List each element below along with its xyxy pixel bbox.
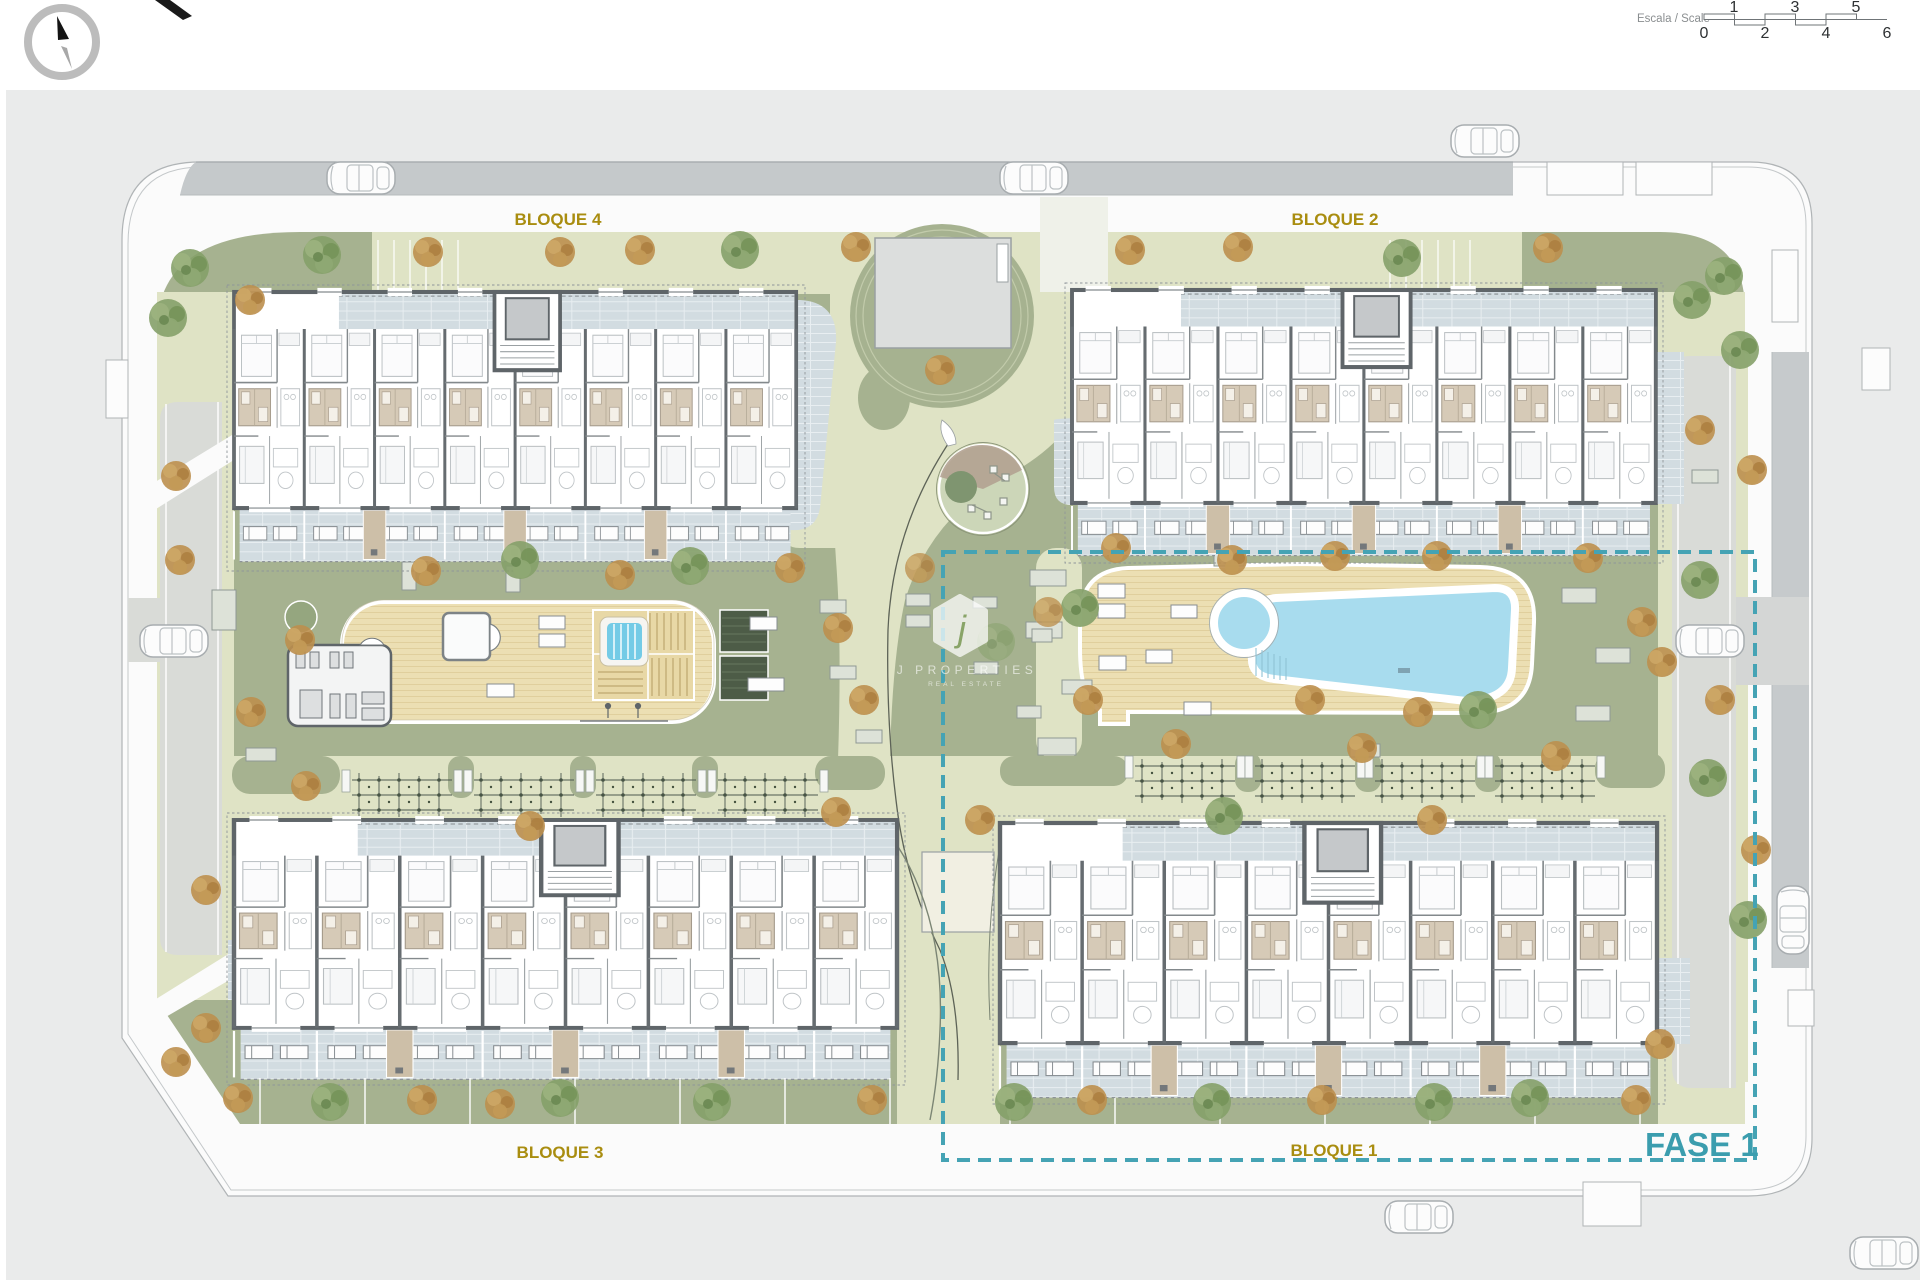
svg-text:J PROPERTIES: J PROPERTIES: [897, 663, 1037, 677]
svg-text:5: 5: [1852, 0, 1861, 16]
svg-text:REAL ESTATE: REAL ESTATE: [928, 681, 1004, 688]
svg-text:BLOQUE 4: BLOQUE 4: [515, 210, 602, 229]
svg-text:6: 6: [1883, 25, 1892, 42]
svg-text:3: 3: [1791, 0, 1800, 16]
svg-text:BLOQUE 2: BLOQUE 2: [1292, 210, 1379, 229]
svg-text:BLOQUE 3: BLOQUE 3: [517, 1143, 604, 1162]
svg-text:0: 0: [1700, 25, 1709, 42]
svg-text:1: 1: [1730, 0, 1739, 16]
svg-text:BLOQUE 1: BLOQUE 1: [1291, 1141, 1378, 1160]
svg-text:2: 2: [1761, 25, 1770, 42]
svg-text:FASE 1: FASE 1: [1645, 1126, 1759, 1163]
svg-text:4: 4: [1822, 25, 1831, 42]
svg-text:Escala / Scale: Escala / Scale: [1637, 13, 1710, 25]
